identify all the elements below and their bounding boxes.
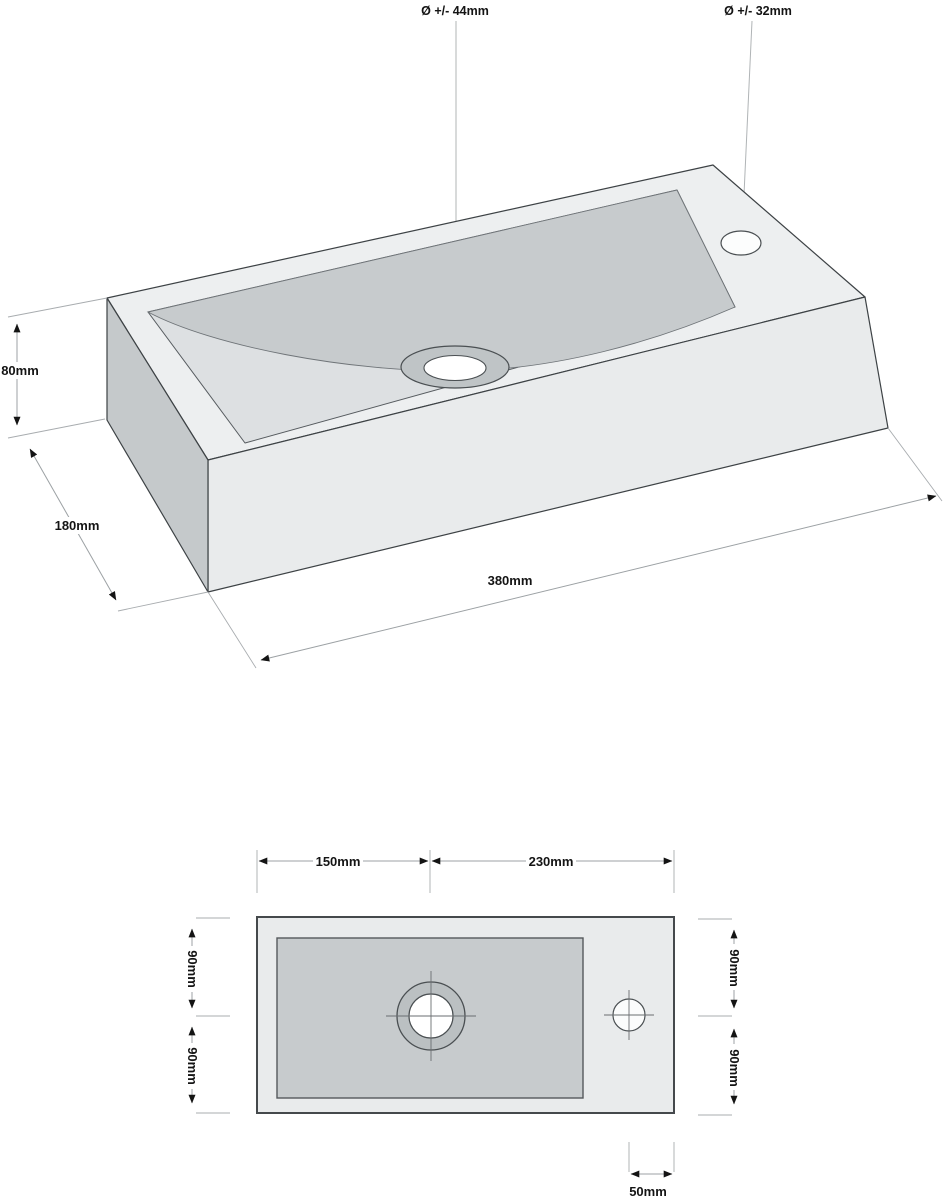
height-extension-top bbox=[8, 298, 107, 317]
height-dimension-label: 80mm bbox=[1, 363, 39, 378]
tap-hole-iso bbox=[721, 231, 761, 255]
tap-diameter-label: Ø +/- 32mm bbox=[724, 4, 792, 18]
plan-view: 150mm 230mm 90mm 90mm 90mm 90mm 50mm bbox=[184, 850, 742, 1199]
plan-depth-left-bottom-label: 90mm bbox=[185, 1047, 200, 1085]
sink-technical-drawing: Ø +/- 44mm Ø +/- 32mm 80mm 180mm 380 bbox=[0, 0, 949, 1200]
plan-depth-left-top-label: 90mm bbox=[185, 950, 200, 988]
height-extension-bottom bbox=[8, 419, 105, 438]
plan-width-right-label: 230mm bbox=[529, 854, 574, 869]
width-extension-left bbox=[208, 592, 256, 668]
depth-extension-bottom bbox=[118, 592, 208, 611]
drain-hole-iso bbox=[424, 356, 486, 381]
width-extension-right bbox=[888, 428, 942, 501]
drain-diameter-label: Ø +/- 44mm bbox=[421, 4, 489, 18]
width-dimension-label: 380mm bbox=[488, 573, 533, 588]
technical-drawing-page: Ø +/- 44mm Ø +/- 32mm 80mm 180mm 380 bbox=[0, 0, 949, 1200]
plan-width-left-label: 150mm bbox=[316, 854, 361, 869]
tap-offset-label: 50mm bbox=[629, 1184, 667, 1199]
plan-depth-right-top-label: 90mm bbox=[727, 949, 742, 987]
depth-dimension-label: 180mm bbox=[55, 518, 100, 533]
plan-depth-right-bottom-label: 90mm bbox=[727, 1049, 742, 1087]
iso-view: Ø +/- 44mm Ø +/- 32mm 80mm 180mm 380 bbox=[1, 4, 942, 668]
